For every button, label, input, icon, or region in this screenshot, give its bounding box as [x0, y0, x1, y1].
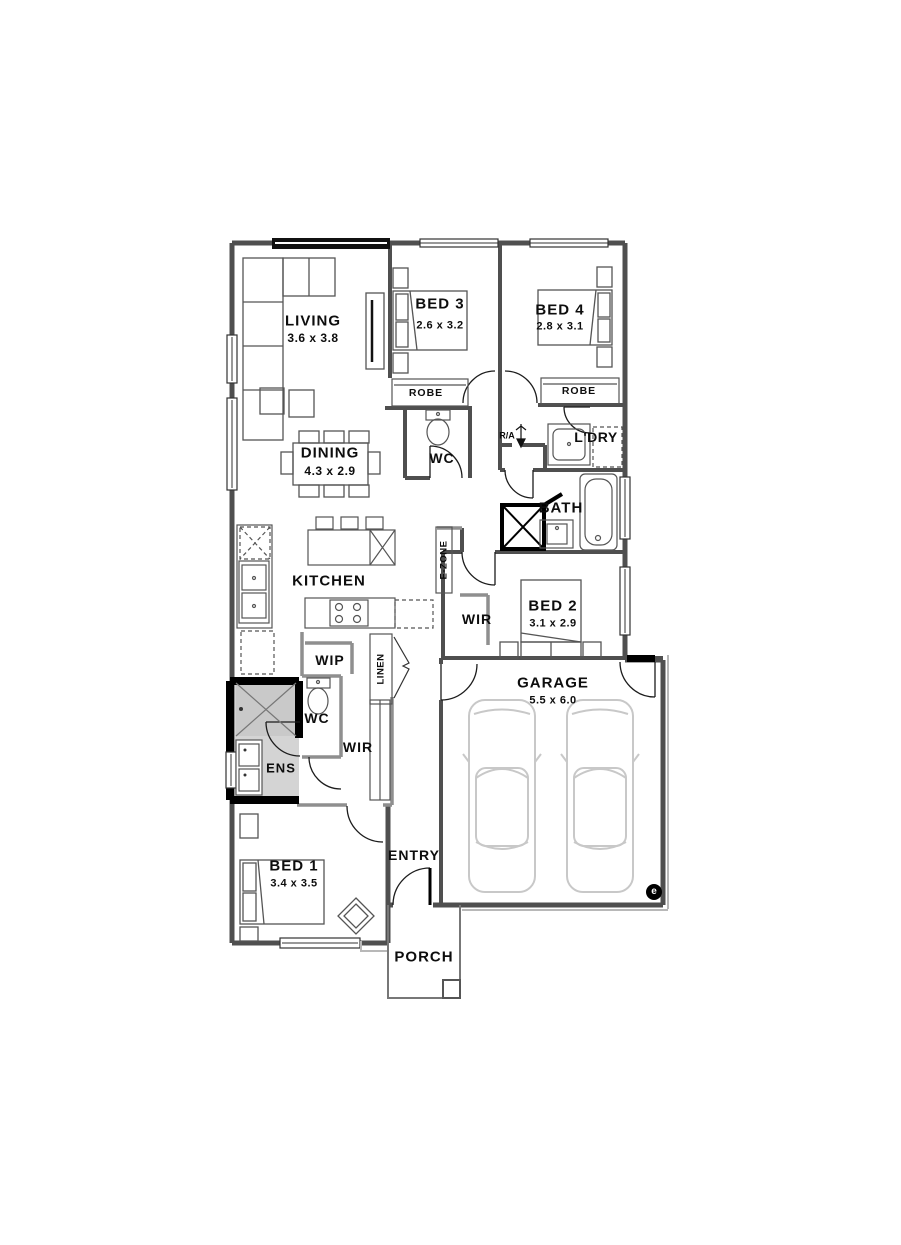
car: [463, 700, 541, 892]
ra-label: R/A: [499, 432, 515, 441]
bed3-label: BED 3: [415, 297, 464, 312]
bed2-label: BED 2: [528, 599, 577, 614]
garage-dims: 5.5 x 6.0: [529, 696, 576, 707]
floorplan-page: LIVING 3.6 x 3.8 BED 3 2.6 x 3.2 BED 4 2…: [0, 0, 901, 1245]
bath-label: BATH: [539, 501, 584, 516]
living-dims: 3.6 x 3.8: [287, 332, 338, 344]
bed1-label: BED 1: [269, 859, 318, 874]
kitchen-label: KITCHEN: [292, 574, 366, 589]
wc-lower-label: WC: [304, 711, 329, 725]
toilet-upper: [426, 410, 450, 445]
robe3-label: ROBE: [409, 388, 443, 399]
linen-label: LINEN: [376, 654, 386, 685]
robe4-label: ROBE: [562, 386, 596, 397]
bed1-door: [347, 806, 383, 842]
bed4-label: BED 4: [535, 303, 584, 318]
tv-unit: [366, 293, 384, 369]
stool: [366, 517, 383, 529]
living-label: LIVING: [285, 314, 341, 329]
garage-cars: [463, 700, 639, 892]
dining-label: DINING: [301, 446, 360, 461]
car: [561, 700, 639, 892]
dining-dims: 4.3 x 2.9: [304, 465, 355, 477]
bath-door: [505, 470, 533, 498]
stool: [341, 517, 358, 529]
side-table: [260, 388, 284, 414]
bed3-dims: 2.6 x 3.2: [416, 321, 463, 332]
ezone-label: E-ZONE: [439, 541, 449, 580]
ens-label: ENS: [266, 762, 296, 775]
garage-label: GARAGE: [517, 676, 589, 691]
front-door-arc: [393, 868, 430, 905]
floorplan-drawing: [0, 0, 901, 1245]
fridge-provision: [395, 600, 433, 628]
wc-lower-door: [309, 757, 341, 789]
ldry-label: L'DRY: [574, 430, 617, 444]
entry-label: ENTRY: [388, 848, 440, 862]
cooktop-bench: [305, 598, 395, 628]
bed2-door: [462, 552, 495, 585]
living-furniture: [243, 258, 384, 440]
garage-internal-door: [441, 664, 477, 700]
kitchen-sink: [239, 561, 269, 623]
garage-door-lintel: [627, 655, 655, 662]
meter-label: e: [651, 887, 657, 897]
bed2-dims: 3.1 x 2.9: [529, 619, 576, 630]
kitchen-fixtures: [237, 517, 433, 674]
toilet-lower: [307, 678, 330, 714]
wir-bed2-label: WIR: [462, 612, 492, 626]
stool: [316, 517, 333, 529]
wip-label: WIP: [315, 653, 344, 667]
appliance-space: [241, 631, 274, 674]
porch-label: PORCH: [394, 950, 453, 965]
side-table: [289, 390, 314, 417]
bed4-dims: 2.8 x 3.1: [536, 322, 583, 333]
bed4-door: [505, 371, 537, 403]
wc-upper-label: WC: [429, 451, 454, 465]
bed1-dims: 3.4 x 3.5: [270, 879, 317, 890]
window-living-top: [272, 238, 390, 249]
garage-side-door: [620, 662, 655, 697]
wir-lower-label: WIR: [343, 740, 373, 754]
cooktop: [330, 600, 368, 626]
